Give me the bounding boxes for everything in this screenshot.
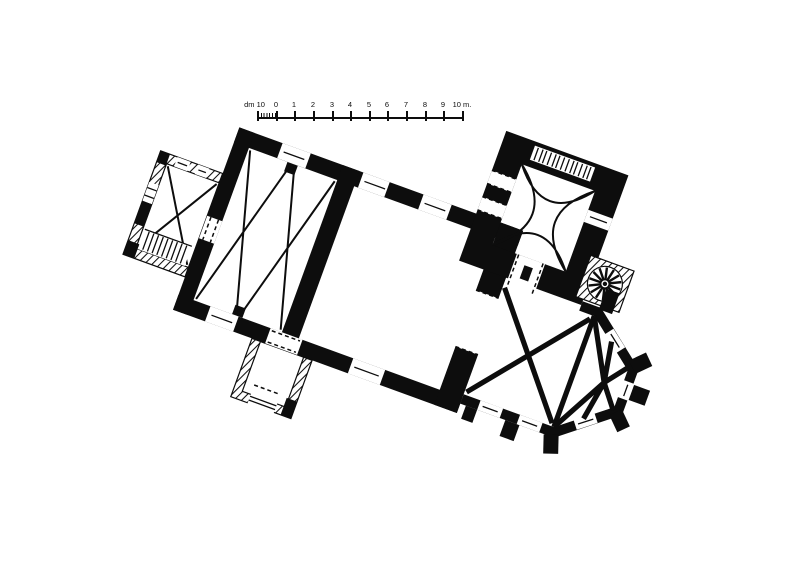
floor-plan-svg <box>0 0 800 573</box>
porch-entrance <box>247 393 278 415</box>
sheet: dm 10 0 1 2 3 4 5 6 7 8 9 10 m. <box>0 0 800 573</box>
nave-divider-wall <box>276 165 359 353</box>
south-porch <box>230 323 318 420</box>
